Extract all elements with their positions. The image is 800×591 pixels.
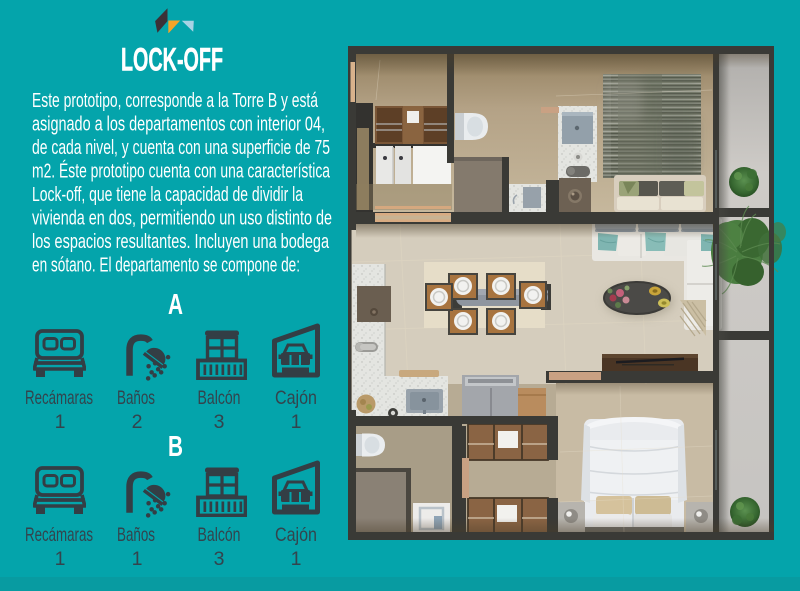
svg-text:A: A — [168, 289, 183, 321]
svg-text:B: B — [168, 431, 183, 463]
svg-text:Cajón: Cajón — [275, 524, 317, 546]
svg-text:Recámaras: Recámaras — [25, 387, 93, 409]
svg-text:3: 3 — [214, 548, 225, 570]
svg-text:los espacios resultantes. Incl: los espacios resultantes. Incluyen una b… — [32, 230, 329, 253]
svg-text:Recámaras: Recámaras — [25, 524, 93, 546]
svg-text:1: 1 — [291, 548, 302, 570]
svg-text:2: 2 — [132, 411, 143, 433]
svg-text:vivienda en dos, permitiendo u: vivienda en dos, permitiendo un uso dist… — [32, 207, 332, 230]
svg-text:Baños: Baños — [117, 387, 155, 409]
svg-text:LOCK-OFF: LOCK-OFF — [121, 42, 223, 78]
svg-text:3: 3 — [214, 411, 225, 433]
svg-text:Balcón: Balcón — [198, 387, 241, 409]
svg-text:1: 1 — [291, 411, 302, 433]
svg-text:Lock-off, que tiene la capacid: Lock-off, que tiene la capacidad de divi… — [32, 183, 303, 206]
svg-text:en sótano. El departamento se: en sótano. El departamento se compone de… — [32, 254, 300, 277]
svg-text:m2. Éste prototipo cuenta con: m2. Éste prototipo cuenta con una caract… — [32, 160, 330, 183]
svg-text:1: 1 — [55, 411, 66, 433]
svg-text:Este prototipo, corresponde a: Este prototipo, corresponde a la Torre B… — [32, 89, 318, 112]
svg-text:1: 1 — [55, 548, 66, 570]
svg-text:Baños: Baños — [117, 524, 155, 546]
svg-text:1: 1 — [132, 548, 143, 570]
svg-text:Balcón: Balcón — [198, 524, 241, 546]
svg-text:asignado a los departamentos c: asignado a los departamentos con interio… — [32, 113, 325, 136]
svg-text:de cada nivel, y cuenta con un: de cada nivel, y cuenta con una superfic… — [32, 136, 330, 159]
svg-text:Cajón: Cajón — [275, 387, 317, 409]
